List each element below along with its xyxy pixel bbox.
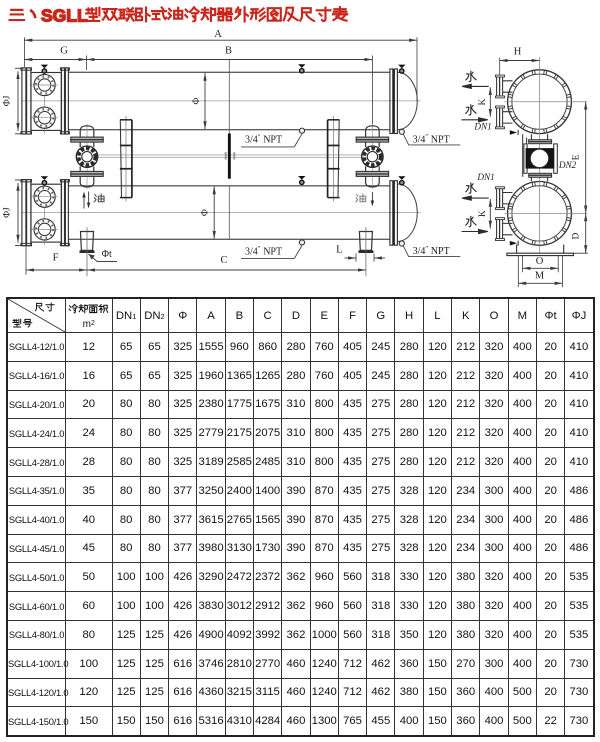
svg-text:B: B (225, 46, 232, 57)
svg-text:E: E (572, 154, 582, 160)
svg-text:Φt: Φt (102, 249, 112, 260)
svg-text:DN1: DN1 (473, 121, 491, 131)
svg-text:SGLL: SGLL (41, 6, 88, 26)
svg-text:A: A (214, 29, 222, 40)
svg-text:D: D (572, 232, 582, 239)
svg-text:G: G (60, 46, 68, 57)
svg-text:O: O (536, 256, 544, 267)
svg-text:L: L (336, 245, 342, 256)
svg-text:F: F (53, 253, 59, 264)
svg-text:H: H (514, 47, 522, 58)
svg-text:Φ: Φ (201, 209, 211, 216)
svg-text:Φ: Φ (192, 97, 202, 104)
svg-text:C: C (220, 255, 227, 266)
svg-text:DN2: DN2 (558, 160, 577, 170)
svg-text:M: M (535, 271, 545, 282)
svg-text:DN1: DN1 (476, 172, 494, 182)
